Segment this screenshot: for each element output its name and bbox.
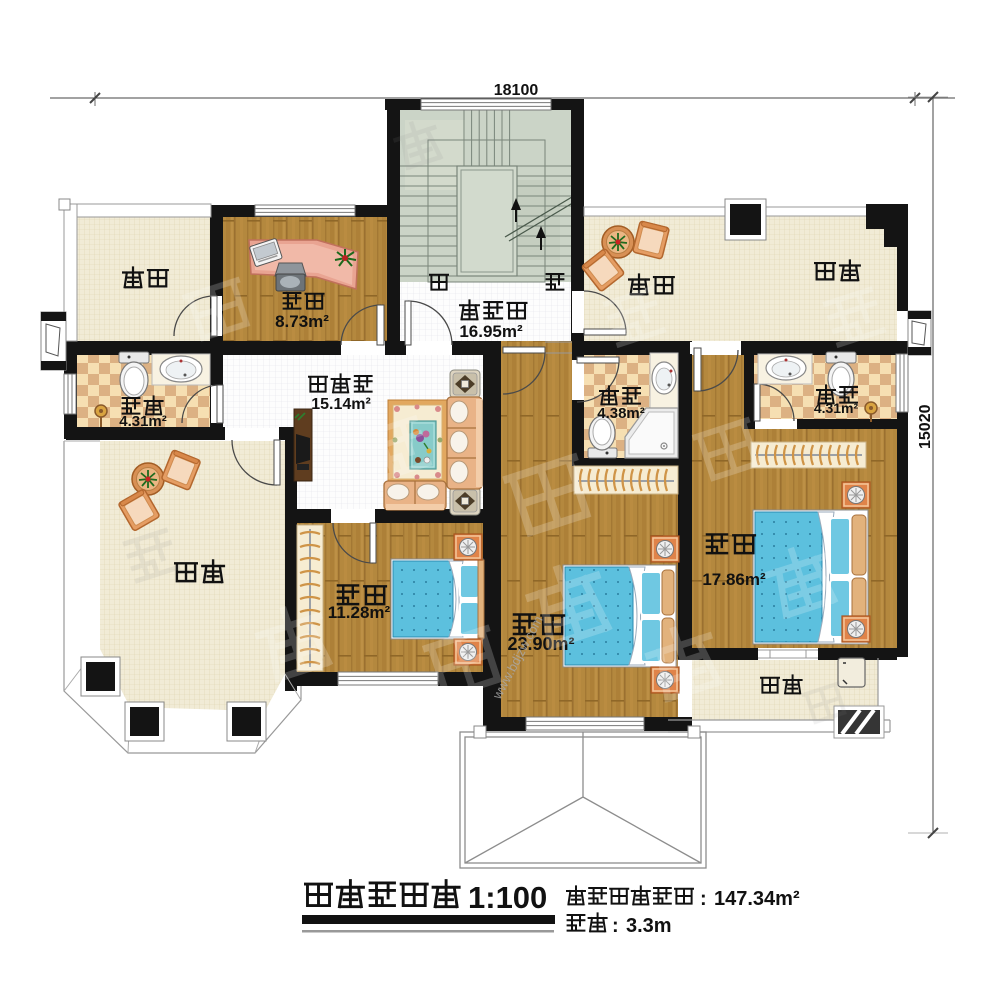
- svg-text:16.95m²: 16.95m²: [459, 322, 523, 341]
- svg-text::: :: [700, 888, 707, 910]
- svg-text:147.34m²: 147.34m²: [714, 888, 800, 910]
- svg-text:17.86m²: 17.86m²: [702, 570, 766, 589]
- svg-text:8.73m²: 8.73m²: [275, 312, 329, 331]
- svg-text:11.28m²: 11.28m²: [328, 603, 391, 622]
- svg-text:4.31m²: 4.31m²: [119, 413, 167, 430]
- svg-text:15020: 15020: [917, 404, 934, 449]
- svg-text:18100: 18100: [494, 82, 539, 99]
- svg-text:4.31m²: 4.31m²: [814, 400, 859, 416]
- svg-text:15.14m²: 15.14m²: [311, 396, 371, 413]
- svg-text::: :: [612, 915, 619, 937]
- svg-text:3.3m: 3.3m: [626, 915, 672, 937]
- svg-text:1:100: 1:100: [468, 880, 547, 915]
- svg-text:4.38m²: 4.38m²: [597, 405, 645, 422]
